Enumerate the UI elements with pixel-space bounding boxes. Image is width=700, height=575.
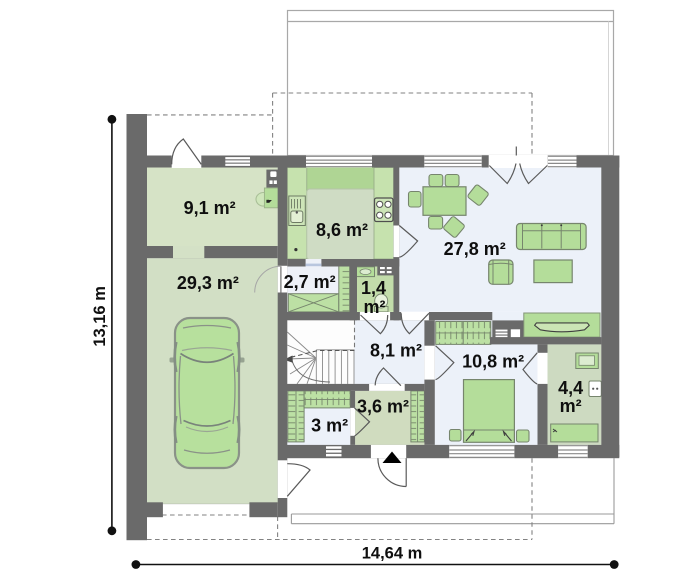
svg-text:10,8 m²: 10,8 m² — [462, 352, 524, 372]
svg-text:27,8 m²: 27,8 m² — [444, 239, 506, 259]
svg-text:9,1 m²: 9,1 m² — [184, 198, 236, 218]
svg-text:3 m²: 3 m² — [311, 415, 348, 435]
svg-text:3,6 m²: 3,6 m² — [357, 397, 409, 417]
svg-text:13,16 m: 13,16 m — [91, 286, 109, 347]
svg-text:2,7 m²: 2,7 m² — [284, 272, 336, 292]
svg-text:14,64 m: 14,64 m — [362, 545, 423, 563]
svg-text:m²: m² — [560, 396, 582, 416]
svg-text:8,6 m²: 8,6 m² — [316, 220, 368, 240]
svg-text:8,1 m²: 8,1 m² — [370, 341, 422, 361]
svg-text:1,4: 1,4 — [361, 278, 386, 298]
svg-text:m²: m² — [364, 297, 386, 317]
svg-text:29,3 m²: 29,3 m² — [177, 273, 239, 293]
